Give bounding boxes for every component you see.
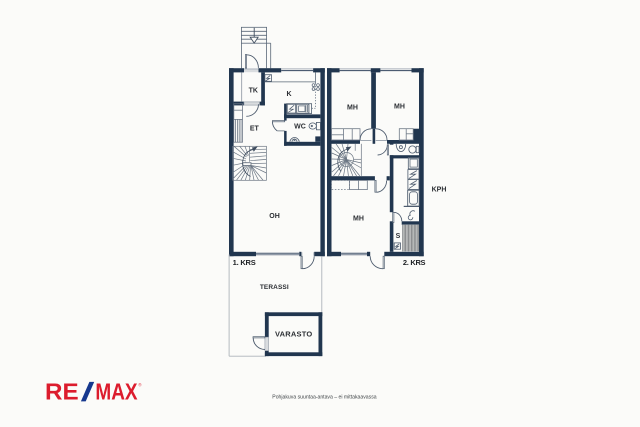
- svg-text:VARASTO: VARASTO: [275, 329, 312, 338]
- svg-text:MH: MH: [347, 105, 358, 112]
- svg-text:TERASSI: TERASSI: [260, 284, 289, 291]
- svg-text:MAX: MAX: [95, 379, 137, 405]
- svg-text:RE: RE: [45, 379, 79, 405]
- svg-text:WC: WC: [294, 124, 306, 131]
- svg-text:S: S: [396, 233, 401, 240]
- svg-text:2. KRS: 2. KRS: [403, 258, 426, 267]
- svg-text:ET: ET: [250, 126, 260, 133]
- svg-text:KPH: KPH: [432, 187, 447, 194]
- svg-text:Pohjakuva suuntaa-antava – ei: Pohjakuva suuntaa-antava – ei mittakaava…: [272, 395, 377, 401]
- svg-text:MH: MH: [353, 215, 364, 222]
- svg-text:TK: TK: [249, 87, 258, 94]
- svg-text:K: K: [286, 91, 291, 98]
- svg-text:MH: MH: [394, 104, 405, 111]
- svg-text:OH: OH: [269, 213, 280, 220]
- svg-text:1. KRS: 1. KRS: [233, 258, 256, 267]
